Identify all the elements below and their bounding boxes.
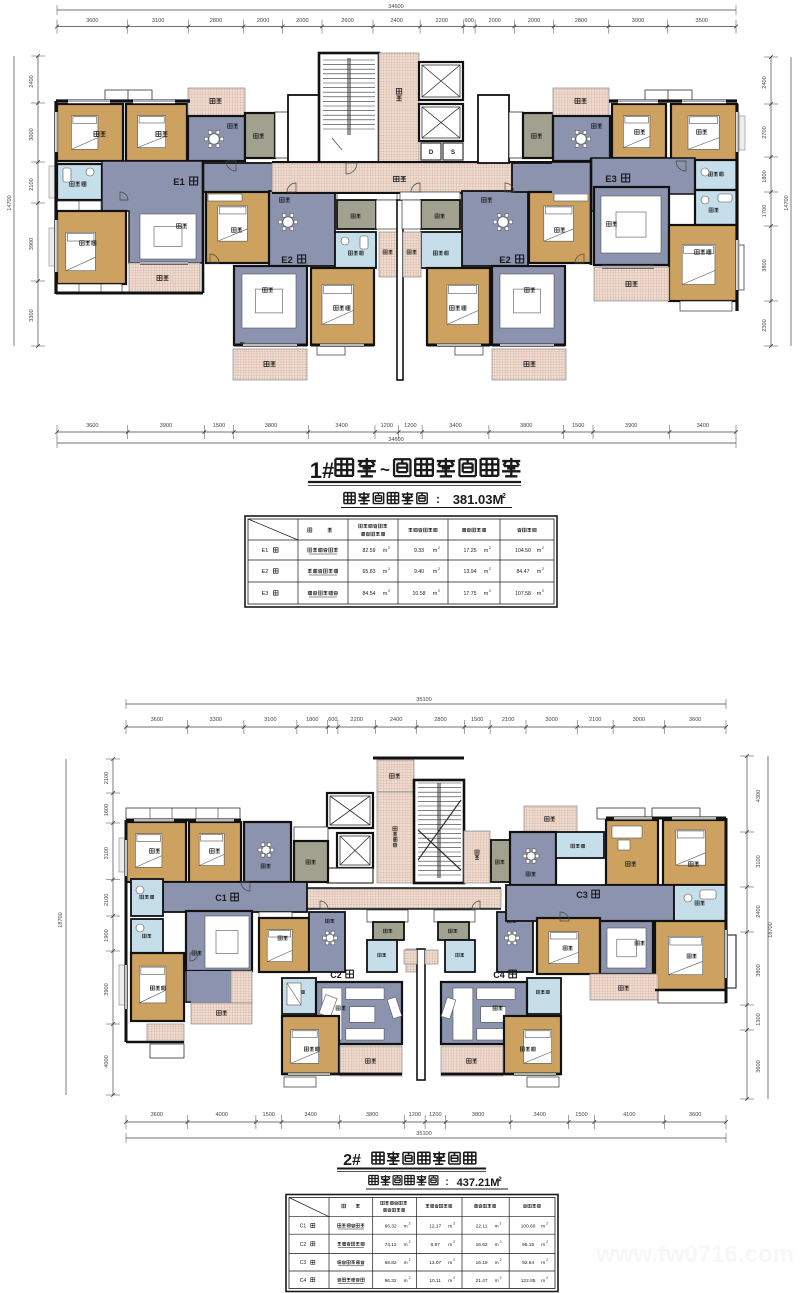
svg-text:2: 2 xyxy=(388,589,390,593)
svg-text:14700: 14700 xyxy=(7,195,13,211)
svg-text:34600: 34600 xyxy=(388,4,404,10)
svg-text:2: 2 xyxy=(546,1276,548,1280)
svg-text:3900: 3900 xyxy=(160,423,172,429)
svg-text:www.fw0716.com: www.fw0716.com xyxy=(595,1241,794,1268)
svg-text:E2: E2 xyxy=(281,255,293,266)
svg-text:14700: 14700 xyxy=(784,195,790,211)
svg-text:E2: E2 xyxy=(499,255,511,266)
svg-text:3900: 3900 xyxy=(625,423,637,429)
svg-text:3100: 3100 xyxy=(264,717,276,723)
svg-text:3400: 3400 xyxy=(533,1112,545,1118)
svg-text:m: m xyxy=(541,1279,545,1284)
svg-text:84.54: 84.54 xyxy=(363,591,376,597)
svg-text:3600: 3600 xyxy=(689,1112,701,1118)
svg-text:3600: 3600 xyxy=(86,18,98,24)
svg-text:1200: 1200 xyxy=(429,1112,441,1118)
svg-text:1600: 1600 xyxy=(104,804,110,816)
svg-text:4300: 4300 xyxy=(756,790,762,802)
svg-text:3000: 3000 xyxy=(633,717,645,723)
svg-text:2400: 2400 xyxy=(390,717,402,723)
svg-text:3500: 3500 xyxy=(695,18,707,24)
svg-text:m: m xyxy=(404,1225,408,1230)
svg-text:C2: C2 xyxy=(330,970,342,980)
svg-text:1#: 1# xyxy=(310,458,334,483)
svg-text:m: m xyxy=(495,1243,499,1248)
svg-text:3100: 3100 xyxy=(756,855,762,867)
svg-text:m: m xyxy=(537,569,541,575)
svg-text:1200: 1200 xyxy=(409,1112,421,1118)
svg-text:1300: 1300 xyxy=(756,1013,762,1025)
svg-text:2100: 2100 xyxy=(104,772,110,784)
svg-text:m: m xyxy=(495,1225,499,1230)
svg-text:2: 2 xyxy=(453,1258,455,1262)
svg-text:m: m xyxy=(383,548,387,554)
svg-text:9.33: 9.33 xyxy=(414,548,424,554)
svg-text:2: 2 xyxy=(489,546,491,550)
svg-text:10.11: 10.11 xyxy=(429,1278,441,1284)
svg-text:3900: 3900 xyxy=(104,983,110,995)
svg-text:3000: 3000 xyxy=(632,18,644,24)
svg-text:2: 2 xyxy=(546,1240,548,1244)
svg-text:3800: 3800 xyxy=(762,259,768,271)
svg-text:4000: 4000 xyxy=(104,1055,110,1067)
svg-text:2: 2 xyxy=(409,1222,411,1226)
svg-text:18700: 18700 xyxy=(58,912,64,928)
svg-text:2100: 2100 xyxy=(502,717,514,723)
svg-text:E2: E2 xyxy=(262,569,269,575)
svg-text:2: 2 xyxy=(438,546,440,550)
svg-text:2: 2 xyxy=(438,567,440,571)
svg-text:m: m xyxy=(383,569,387,575)
svg-text:2: 2 xyxy=(502,493,506,500)
svg-text:18700: 18700 xyxy=(768,922,774,938)
svg-text:m: m xyxy=(433,591,437,597)
svg-text:10.58: 10.58 xyxy=(413,591,426,597)
svg-text:2800: 2800 xyxy=(434,717,446,723)
svg-text:1800: 1800 xyxy=(762,170,768,182)
svg-text:2: 2 xyxy=(453,1222,455,1226)
svg-text:2100: 2100 xyxy=(104,894,110,906)
svg-text:E3: E3 xyxy=(262,591,269,597)
svg-text:1700: 1700 xyxy=(762,205,768,217)
svg-text:69.82: 69.82 xyxy=(385,1260,397,1266)
svg-text:3400: 3400 xyxy=(449,423,461,429)
svg-text:13.07: 13.07 xyxy=(429,1260,441,1266)
svg-text:1500: 1500 xyxy=(471,717,483,723)
svg-text:m: m xyxy=(541,1243,545,1248)
svg-text:2000: 2000 xyxy=(488,18,500,24)
svg-text:E1: E1 xyxy=(262,548,269,554)
svg-text:21.47: 21.47 xyxy=(476,1278,488,1284)
svg-text:C1: C1 xyxy=(300,1224,307,1230)
svg-text:1200: 1200 xyxy=(381,423,393,429)
svg-text:2800: 2800 xyxy=(575,18,587,24)
svg-text:2000: 2000 xyxy=(296,18,308,24)
svg-text:600: 600 xyxy=(465,18,474,24)
svg-text:65.83: 65.83 xyxy=(363,569,376,575)
svg-text:34600: 34600 xyxy=(388,437,404,443)
svg-text:S: S xyxy=(451,150,455,156)
svg-text:m: m xyxy=(484,548,488,554)
svg-text:35100: 35100 xyxy=(416,1131,432,1137)
svg-text:m: m xyxy=(495,1261,499,1266)
svg-text:96.32: 96.32 xyxy=(385,1278,397,1284)
svg-text:17.75: 17.75 xyxy=(464,591,477,597)
svg-text:C4: C4 xyxy=(493,970,505,980)
svg-text:C3: C3 xyxy=(576,890,588,900)
svg-text:9.40: 9.40 xyxy=(414,569,424,575)
svg-text:2000: 2000 xyxy=(528,18,540,24)
svg-text:22.11: 22.11 xyxy=(476,1224,488,1230)
svg-text:E1: E1 xyxy=(173,177,185,188)
svg-text:2: 2 xyxy=(542,589,544,593)
svg-text:2: 2 xyxy=(500,1276,502,1280)
svg-text:381.03M: 381.03M xyxy=(453,492,504,507)
svg-text:m: m xyxy=(541,1261,545,1266)
svg-text:84.47: 84.47 xyxy=(517,569,530,575)
svg-text:2#: 2# xyxy=(343,1152,361,1169)
svg-text:C4: C4 xyxy=(300,1278,307,1284)
svg-text:m: m xyxy=(537,548,541,554)
svg-text:2400: 2400 xyxy=(29,75,35,87)
svg-text::: : xyxy=(436,492,440,506)
svg-text:2: 2 xyxy=(438,589,440,593)
svg-text:3900: 3900 xyxy=(29,238,35,250)
svg-text:m: m xyxy=(404,1261,408,1266)
svg-text:3400: 3400 xyxy=(304,1112,316,1118)
svg-text:2: 2 xyxy=(500,1240,502,1244)
svg-text:107.58: 107.58 xyxy=(515,591,531,597)
svg-text:2: 2 xyxy=(546,1222,548,1226)
svg-text:2200: 2200 xyxy=(350,717,362,723)
svg-text:3800: 3800 xyxy=(265,423,277,429)
svg-text:3800: 3800 xyxy=(520,423,532,429)
svg-text:D: D xyxy=(429,150,434,156)
svg-text:m: m xyxy=(433,569,437,575)
svg-text:2: 2 xyxy=(388,546,390,550)
svg-text:3800: 3800 xyxy=(472,1112,484,1118)
svg-text:2400: 2400 xyxy=(390,18,402,24)
svg-text:2: 2 xyxy=(388,567,390,571)
svg-text:2200: 2200 xyxy=(435,18,447,24)
svg-text:2000: 2000 xyxy=(257,18,269,24)
svg-text:3300: 3300 xyxy=(209,717,221,723)
svg-text:3600: 3600 xyxy=(756,1060,762,1072)
svg-text:1900: 1900 xyxy=(104,929,110,941)
svg-text:1500: 1500 xyxy=(575,1112,587,1118)
svg-text:2: 2 xyxy=(542,546,544,550)
svg-text:1800: 1800 xyxy=(306,717,318,723)
svg-text:437.21M: 437.21M xyxy=(457,1177,500,1189)
svg-text::: : xyxy=(445,1177,448,1188)
svg-text:95.19: 95.19 xyxy=(522,1242,534,1248)
svg-text:2400: 2400 xyxy=(756,905,762,917)
svg-text:1500: 1500 xyxy=(213,423,225,429)
svg-text:m: m xyxy=(383,591,387,597)
svg-text:C3: C3 xyxy=(300,1260,307,1266)
svg-text:m: m xyxy=(448,1225,452,1230)
svg-text:~: ~ xyxy=(380,460,390,479)
svg-text:2: 2 xyxy=(409,1276,411,1280)
svg-text:4000: 4000 xyxy=(215,1112,227,1118)
svg-text:1500: 1500 xyxy=(262,1112,274,1118)
svg-text:C1: C1 xyxy=(215,893,227,903)
svg-text:3600: 3600 xyxy=(689,717,701,723)
svg-text:8.87: 8.87 xyxy=(431,1242,441,1248)
svg-text:3600: 3600 xyxy=(86,423,98,429)
svg-text:2: 2 xyxy=(500,1258,502,1262)
svg-text:3100: 3100 xyxy=(152,18,164,24)
svg-text:4100: 4100 xyxy=(623,1112,635,1118)
svg-text:2100: 2100 xyxy=(589,717,601,723)
svg-text:m: m xyxy=(404,1243,408,1248)
svg-text:1200: 1200 xyxy=(404,423,416,429)
svg-text:82.59: 82.59 xyxy=(363,548,376,554)
svg-text:3100: 3100 xyxy=(104,847,110,859)
svg-text:2: 2 xyxy=(542,567,544,571)
svg-text:104.50: 104.50 xyxy=(515,548,531,554)
svg-text:2: 2 xyxy=(500,1222,502,1226)
svg-text:12.17: 12.17 xyxy=(429,1224,441,1230)
svg-text:2: 2 xyxy=(489,589,491,593)
svg-text:m: m xyxy=(404,1279,408,1284)
svg-text:m: m xyxy=(448,1261,452,1266)
svg-text:m: m xyxy=(448,1279,452,1284)
svg-text:1500: 1500 xyxy=(572,423,584,429)
svg-text:16.19: 16.19 xyxy=(476,1260,488,1266)
svg-text:2: 2 xyxy=(409,1240,411,1244)
svg-text:122.85: 122.85 xyxy=(521,1278,536,1284)
svg-text:2600: 2600 xyxy=(341,18,353,24)
svg-text:3800: 3800 xyxy=(756,964,762,976)
svg-text:13.94: 13.94 xyxy=(464,569,477,575)
svg-text:2800: 2800 xyxy=(210,18,222,24)
svg-text:74.12: 74.12 xyxy=(385,1242,397,1248)
svg-text:100.60: 100.60 xyxy=(521,1224,536,1230)
svg-text:2300: 2300 xyxy=(762,319,768,331)
svg-text:3600: 3600 xyxy=(151,717,163,723)
svg-text:C2: C2 xyxy=(300,1242,307,1248)
svg-text:3400: 3400 xyxy=(335,423,347,429)
svg-text:2700: 2700 xyxy=(762,126,768,138)
svg-text:3300: 3300 xyxy=(29,309,35,321)
svg-text:2: 2 xyxy=(489,567,491,571)
svg-text:2: 2 xyxy=(453,1276,455,1280)
svg-text:2: 2 xyxy=(453,1240,455,1244)
svg-text:92.64: 92.64 xyxy=(522,1260,534,1266)
svg-text:m: m xyxy=(495,1279,499,1284)
svg-text:2400: 2400 xyxy=(762,76,768,88)
svg-text:m: m xyxy=(448,1243,452,1248)
svg-text:3400: 3400 xyxy=(697,423,709,429)
svg-text:3600: 3600 xyxy=(151,1112,163,1118)
svg-text:m: m xyxy=(537,591,541,597)
svg-text:2: 2 xyxy=(546,1258,548,1262)
svg-text:3000: 3000 xyxy=(545,717,557,723)
svg-text:3000: 3000 xyxy=(29,128,35,140)
svg-text:17.25: 17.25 xyxy=(464,548,477,554)
svg-text:66.32: 66.32 xyxy=(385,1224,397,1230)
svg-text:m: m xyxy=(484,569,488,575)
svg-text:2: 2 xyxy=(409,1258,411,1262)
svg-text:600: 600 xyxy=(328,717,337,723)
svg-text:35100: 35100 xyxy=(416,697,432,703)
svg-text:3800: 3800 xyxy=(366,1112,378,1118)
svg-text:E3: E3 xyxy=(605,174,617,185)
svg-text:2100: 2100 xyxy=(29,178,35,190)
svg-text:m: m xyxy=(433,548,437,554)
svg-text:m: m xyxy=(484,591,488,597)
svg-text:m: m xyxy=(541,1225,545,1230)
svg-text:16.62: 16.62 xyxy=(476,1242,488,1248)
